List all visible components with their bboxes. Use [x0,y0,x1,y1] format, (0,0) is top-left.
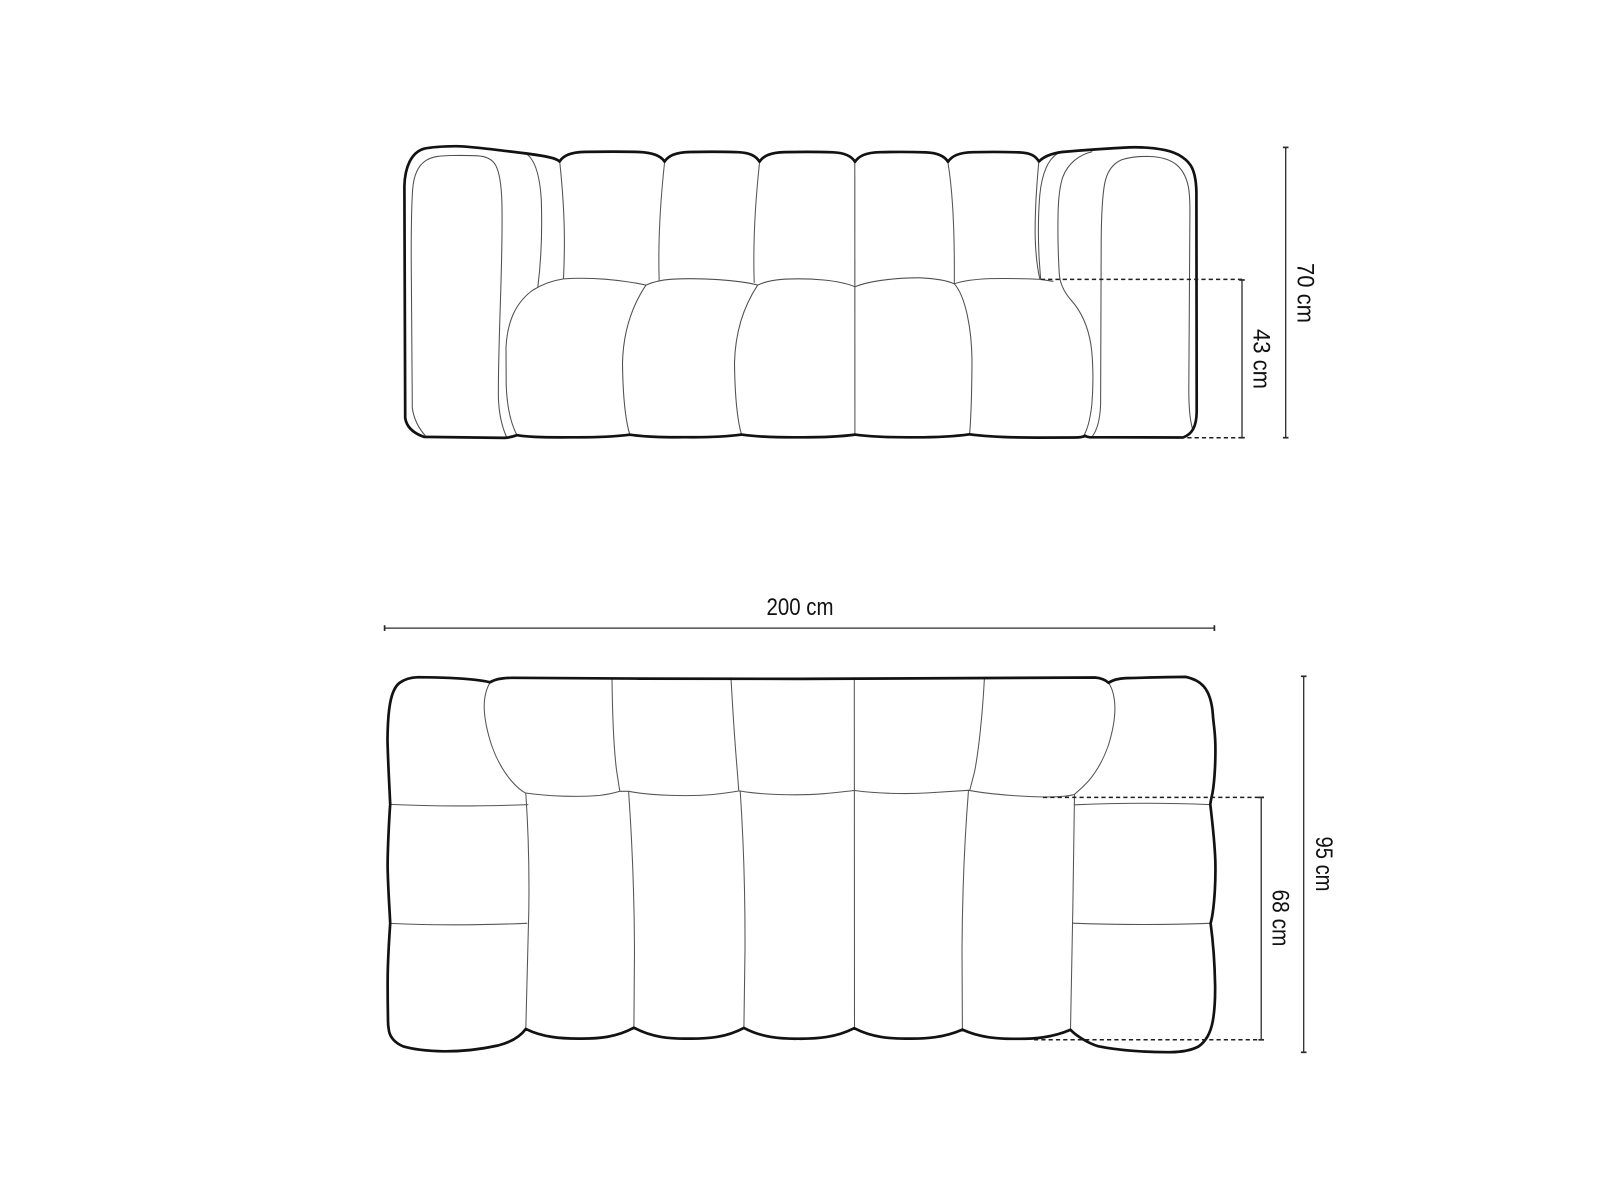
svg-text:200 cm: 200 cm [767,594,834,621]
svg-text:68 cm: 68 cm [1267,890,1294,947]
svg-text:43 cm: 43 cm [1248,329,1275,389]
svg-text:70 cm: 70 cm [1291,263,1318,323]
svg-text:95 cm: 95 cm [1310,837,1337,892]
